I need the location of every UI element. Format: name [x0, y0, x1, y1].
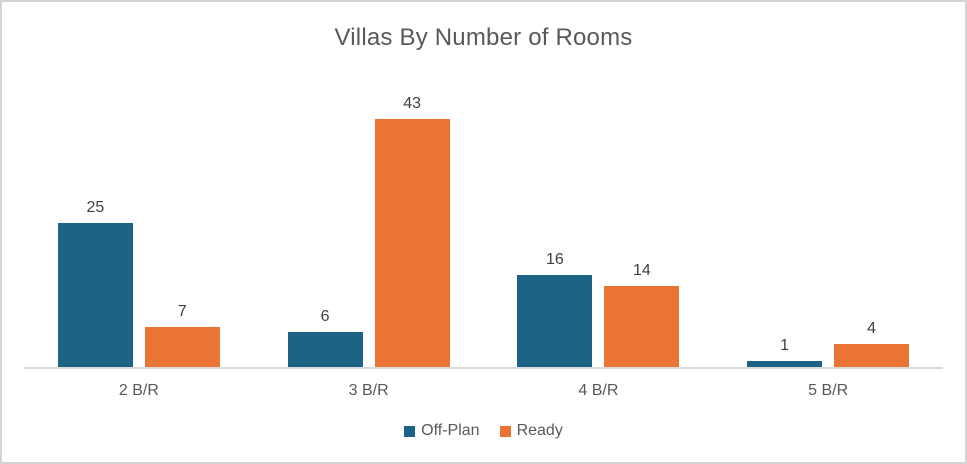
- category-label: 4 B/R: [484, 382, 714, 400]
- bar-group-5-b-r: 14: [713, 79, 943, 367]
- bar-column: 7: [145, 304, 220, 367]
- bar-value-label: 16: [546, 252, 564, 268]
- category-label: 5 B/R: [713, 382, 943, 400]
- category-label: 3 B/R: [254, 382, 484, 400]
- legend: Off-Plan Ready: [2, 422, 965, 440]
- off-plan-bar: [58, 223, 133, 367]
- bar-column: 1: [747, 338, 822, 367]
- chart-title: Villas By Number of Rooms: [2, 24, 965, 52]
- bar-chart: Villas By Number of Rooms 257643161414 2…: [0, 0, 967, 464]
- bar-column: 16: [517, 252, 592, 367]
- legend-label-off-plan: Off-Plan: [421, 422, 479, 440]
- bar-column: 25: [58, 200, 133, 367]
- off-plan-bar: [517, 275, 592, 367]
- bar-value-label: 4: [867, 321, 876, 337]
- legend-item-ready: Ready: [500, 422, 563, 440]
- ready-bar: [145, 327, 220, 367]
- category-label: 2 B/R: [24, 382, 254, 400]
- ready-bar: [375, 119, 450, 367]
- bar-value-label: 43: [403, 96, 421, 112]
- off-plan-swatch-icon: [404, 426, 415, 437]
- bar-group-3-b-r: 643: [254, 79, 484, 367]
- ready-bar: [604, 286, 679, 367]
- ready-swatch-icon: [500, 426, 511, 437]
- bar-column: 6: [288, 309, 363, 367]
- bar-column: 4: [834, 321, 909, 367]
- bar-value-label: 1: [780, 338, 789, 354]
- x-axis-labels: 2 B/R3 B/R4 B/R5 B/R: [24, 382, 943, 400]
- ready-bar: [834, 344, 909, 367]
- bar-group-4-b-r: 1614: [484, 79, 714, 367]
- legend-item-off-plan: Off-Plan: [404, 422, 479, 440]
- bar-column: 43: [375, 96, 450, 367]
- off-plan-bar: [288, 332, 363, 367]
- bar-column: 14: [604, 263, 679, 367]
- bar-value-label: 14: [633, 263, 651, 279]
- legend-label-ready: Ready: [517, 422, 563, 440]
- bar-value-label: 25: [86, 200, 104, 216]
- bar-value-label: 7: [178, 304, 187, 320]
- plot-area: 257643161414: [24, 79, 943, 369]
- bar-value-label: 6: [321, 309, 330, 325]
- off-plan-bar: [747, 361, 822, 367]
- bar-group-2-b-r: 257: [24, 79, 254, 367]
